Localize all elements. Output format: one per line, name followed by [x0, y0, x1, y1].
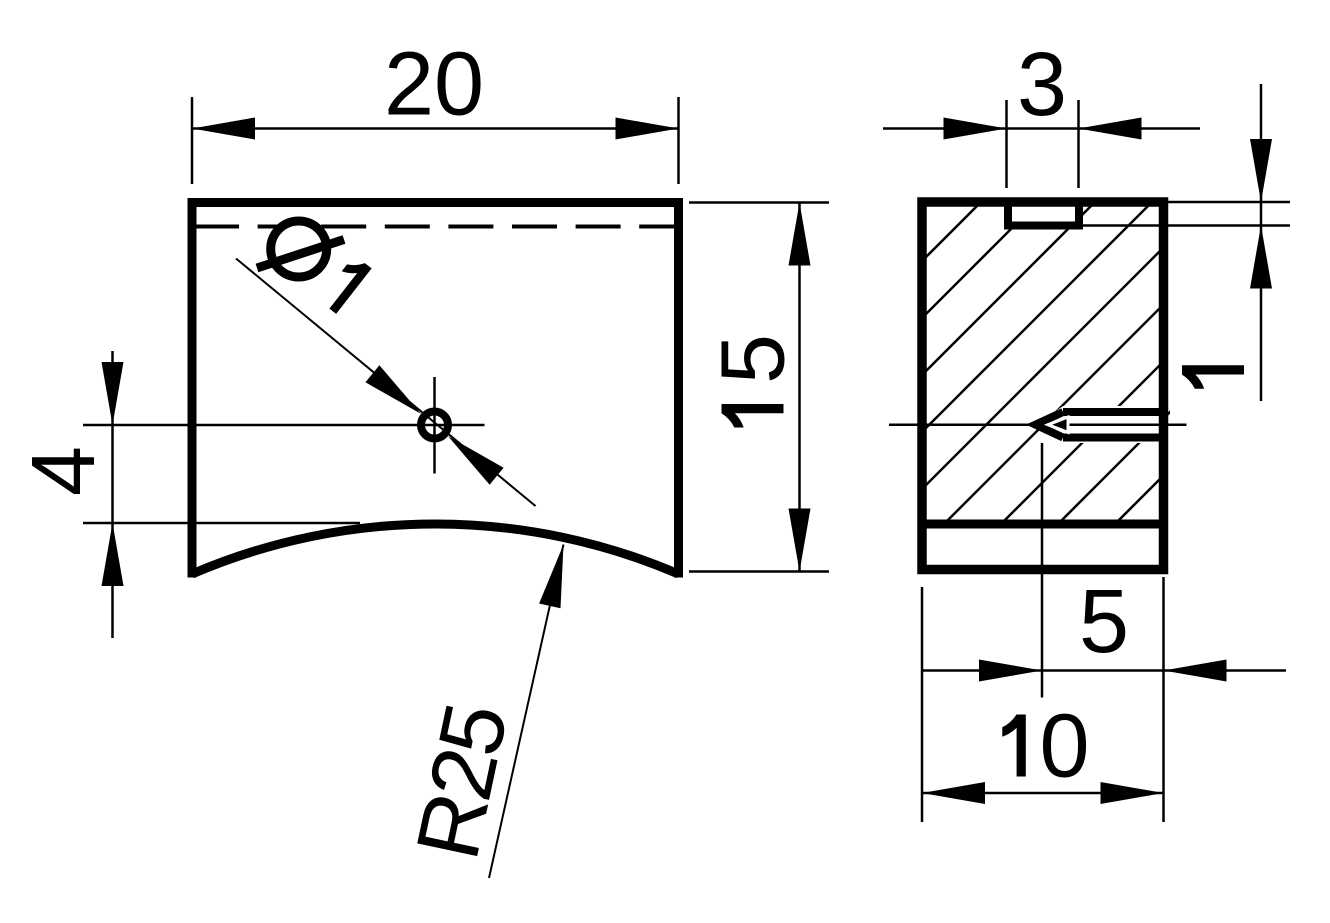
svg-text:20: 20 [384, 35, 484, 135]
svg-text:5: 5 [704, 334, 804, 384]
svg-text:3: 3 [1017, 35, 1067, 135]
svg-text:4: 4 [14, 446, 114, 496]
svg-text:0: 0 [1039, 697, 1089, 797]
svg-text:5: 5 [1079, 572, 1129, 672]
